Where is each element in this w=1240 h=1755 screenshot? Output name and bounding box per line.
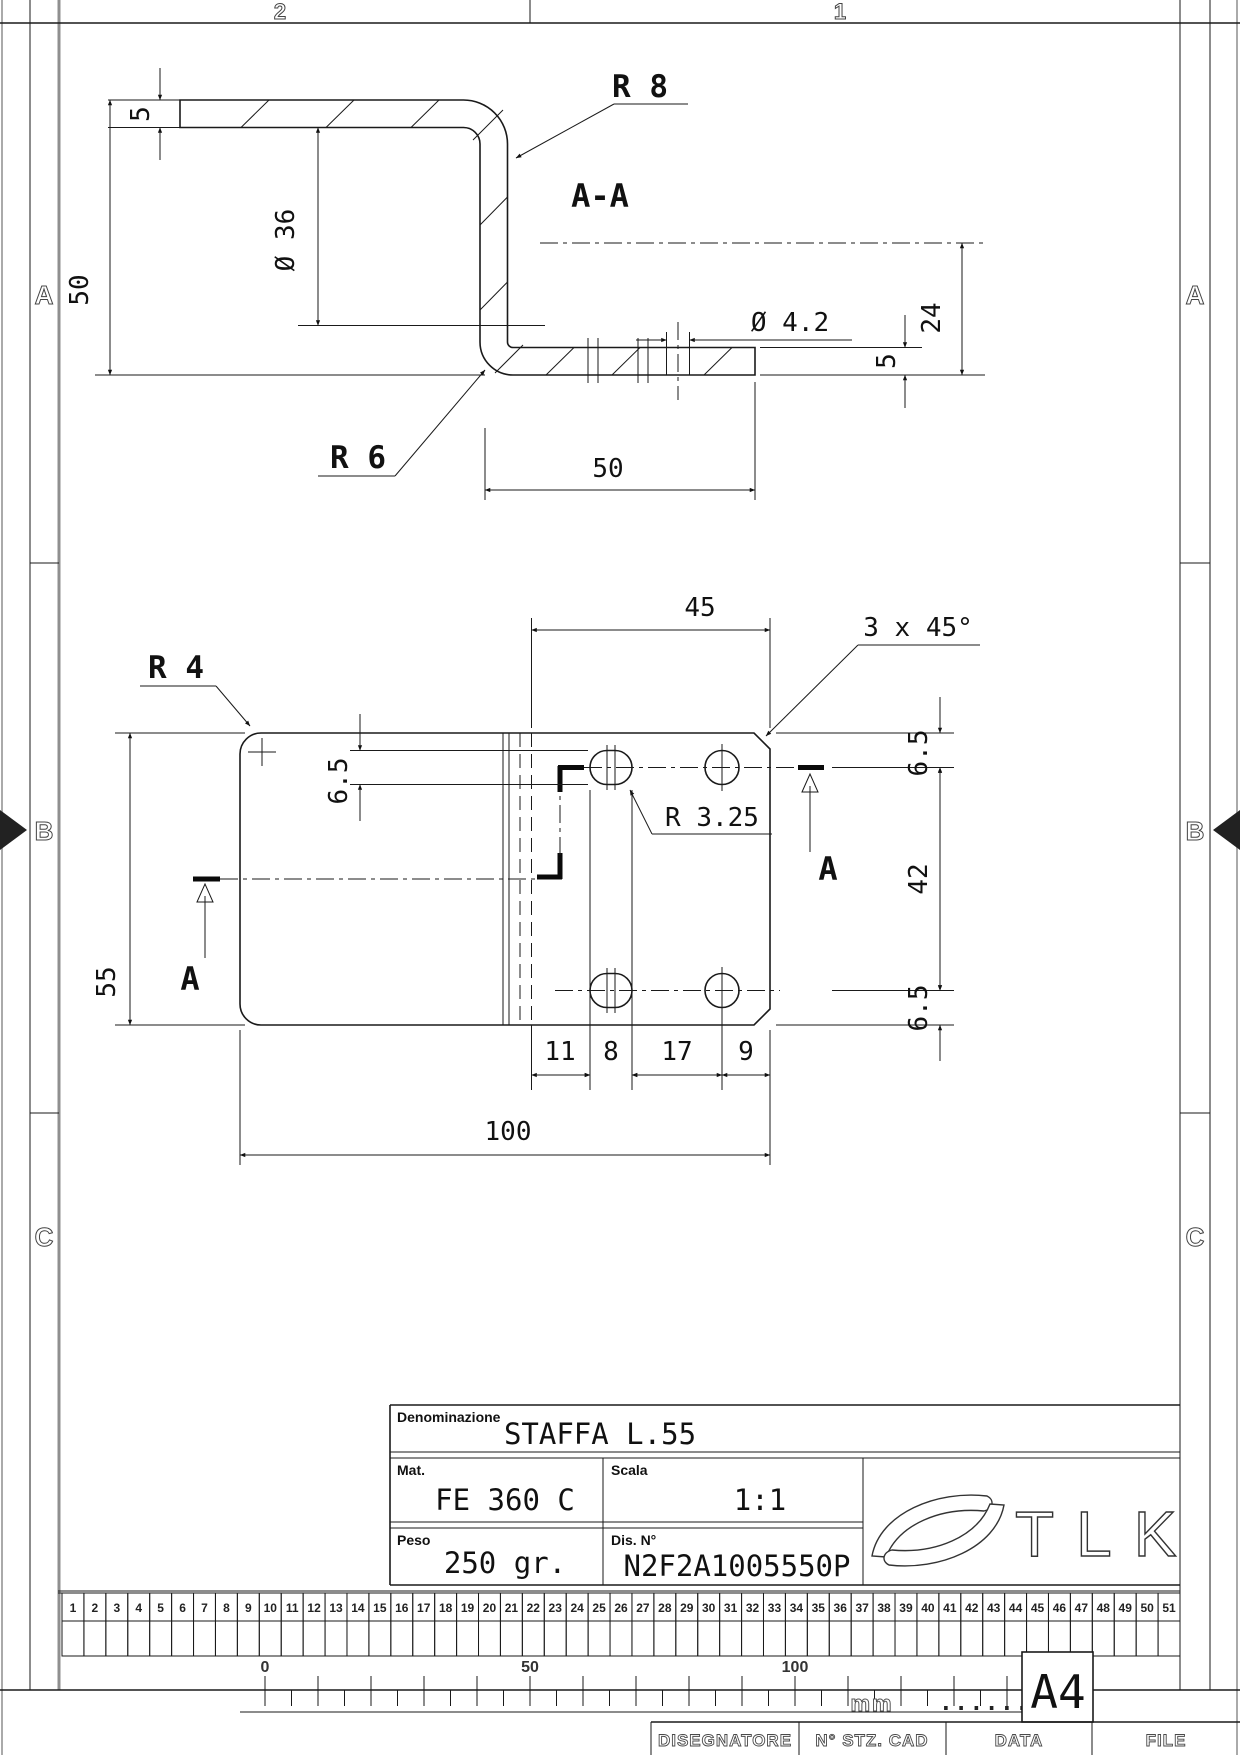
svg-text:6.5: 6.5 — [324, 758, 354, 805]
corner-center-mark — [248, 738, 276, 766]
ruler-cell-number: 28 — [658, 1601, 672, 1615]
ruler-cell — [435, 1621, 457, 1656]
svg-text:50: 50 — [592, 454, 623, 484]
zone-number-1: 1 — [834, 0, 846, 24]
section-hole — [667, 322, 690, 400]
ruler-cell — [654, 1621, 676, 1656]
ruler-cell-number: 47 — [1075, 1601, 1089, 1615]
ruler-cell — [1005, 1621, 1027, 1656]
format-label: A4 — [1030, 1665, 1085, 1719]
ruler-cell — [1027, 1621, 1049, 1656]
svg-text:5: 5 — [872, 353, 902, 369]
ruler-cell — [194, 1621, 216, 1656]
ruler-cell-number: 18 — [439, 1601, 453, 1615]
ruler-cell — [215, 1621, 237, 1656]
ruler-cell-number: 17 — [417, 1601, 431, 1615]
svg-text:R 3.25: R 3.25 — [665, 803, 759, 833]
section-hatch — [241, 100, 732, 375]
section-profile — [180, 100, 755, 375]
tlk-logo: TLK — [872, 1495, 1198, 1570]
ruler-cell — [500, 1621, 522, 1656]
ruler-cell — [632, 1621, 654, 1656]
svg-text:24: 24 — [917, 302, 947, 333]
svg-text:8: 8 — [603, 1037, 619, 1067]
svg-text:17: 17 — [661, 1037, 692, 1067]
dim-r8: R 8 — [516, 69, 688, 158]
ruler-cell-number: 51 — [1162, 1601, 1176, 1615]
ruler-cell — [479, 1621, 501, 1656]
ruler-cell — [785, 1621, 807, 1656]
ruler-cell-number: 16 — [395, 1601, 409, 1615]
scale-ruler-ticks — [265, 1676, 1007, 1706]
dim-slot-height: 6.5 — [324, 714, 588, 821]
ruler-cell-number: 8 — [223, 1601, 230, 1615]
ruler-cell-number: 6 — [179, 1601, 186, 1615]
ruler-cell — [106, 1621, 128, 1656]
ruler-cell-number: 1 — [70, 1601, 77, 1615]
ruler-cell — [259, 1621, 281, 1656]
ruler-cell — [588, 1621, 610, 1656]
ruler-cell-number: 13 — [329, 1601, 343, 1615]
cut-label-left: A — [180, 960, 199, 998]
title-block: Denominazione STAFFA L.55 Mat. FE 360 C … — [58, 1405, 1198, 1591]
ruler-cell-number: 42 — [965, 1601, 979, 1615]
ruler-cell-number: 43 — [987, 1601, 1001, 1615]
ruler-cell-number: 31 — [724, 1601, 738, 1615]
dis-label: Dis. N° — [611, 1532, 656, 1548]
ruler-cell — [1114, 1621, 1136, 1656]
index-ruler: 1234567891011121314151617181920212223242… — [58, 1593, 1180, 1656]
fold-mark-right — [1213, 810, 1240, 850]
ruler-cell — [961, 1621, 983, 1656]
ruler-cell-number: 45 — [1031, 1601, 1045, 1615]
svg-text:R 8: R 8 — [612, 69, 668, 105]
dim-45: 45 — [532, 593, 771, 728]
ruler-cell-number: 36 — [834, 1601, 848, 1615]
svg-text:R 4: R 4 — [148, 650, 204, 686]
ruler-cell-number: 37 — [855, 1601, 869, 1615]
ruler-cell — [983, 1621, 1005, 1656]
ruler-cell — [457, 1621, 479, 1656]
ruler-cell-number: 14 — [351, 1601, 365, 1615]
ruler-cell — [62, 1621, 84, 1656]
footer-n-stz-cad: N° STZ. CAD — [815, 1731, 928, 1750]
dim-w50: 50 — [485, 382, 755, 500]
zone-letter-a-right: A — [1186, 280, 1205, 310]
denominazione-label: Denominazione — [397, 1409, 501, 1425]
ruler-cell — [917, 1621, 939, 1656]
ruler-cell — [150, 1621, 172, 1656]
ruler-cell — [237, 1621, 259, 1656]
dim-offset-top: 6.5 — [776, 697, 954, 804]
dim-r6: R 6 — [318, 370, 485, 476]
footer-strip: DISEGNATORE N° STZ. CAD DATA FILE — [651, 1722, 1240, 1755]
ruler-cell-number: 33 — [768, 1601, 782, 1615]
ruler-cell-number: 3 — [113, 1601, 120, 1615]
ruler-cell — [522, 1621, 544, 1656]
ruler-cell-number: 49 — [1119, 1601, 1133, 1615]
zone-letter-c-right: C — [1186, 1222, 1205, 1252]
ruler-cell-number: 26 — [614, 1601, 628, 1615]
svg-text:50: 50 — [65, 274, 95, 305]
scale-label-100: 100 — [782, 1659, 809, 1676]
dis-value: N2F2A1005550P — [624, 1549, 851, 1583]
svg-text:6.5: 6.5 — [904, 985, 934, 1032]
ruler-cell — [1158, 1621, 1180, 1656]
tlk-logo-text: TLK — [1015, 1498, 1198, 1570]
peso-label: Peso — [397, 1532, 430, 1548]
ruler-cell-number: 30 — [702, 1601, 716, 1615]
ruler-cell — [1048, 1621, 1070, 1656]
dim-thickness-top: 5 — [108, 68, 182, 160]
ruler-cell-number: 22 — [527, 1601, 541, 1615]
ruler-cell-number: 21 — [505, 1601, 519, 1615]
denominazione-value: STAFFA L.55 — [504, 1417, 696, 1451]
ruler-cell — [1070, 1621, 1092, 1656]
ruler-cell — [369, 1621, 391, 1656]
ruler-cell-number: 5 — [157, 1601, 164, 1615]
ruler-cell-number: 11 — [286, 1601, 299, 1615]
ruler-cell — [895, 1621, 917, 1656]
svg-text:R 6: R 6 — [330, 440, 386, 476]
dim-42: 42 — [904, 768, 940, 991]
section-slot-projection — [588, 338, 648, 383]
ruler-cell — [698, 1621, 720, 1656]
sheet-frame: 2 1 A B C A B C — [0, 0, 1240, 1755]
ruler-cell-number: 34 — [790, 1601, 804, 1615]
ruler-cell — [566, 1621, 588, 1656]
dim-r4: R 4 — [140, 650, 250, 726]
svg-text:100: 100 — [485, 1117, 532, 1147]
ruler-cell — [325, 1621, 347, 1656]
ruler-cell — [303, 1621, 325, 1656]
dim-offset-bottom: 6.5 — [776, 955, 954, 1061]
mat-value: FE 360 C — [435, 1483, 575, 1517]
ruler-cell-number: 48 — [1097, 1601, 1111, 1615]
ruler-cell — [873, 1621, 895, 1656]
ruler-cell — [720, 1621, 742, 1656]
zone-letter-c-left: C — [35, 1222, 54, 1252]
drawing-sheet: 2 1 A B C A B C — [0, 0, 1240, 1755]
ruler-cell-number: 15 — [373, 1601, 387, 1615]
peso-value: 250 gr. — [444, 1546, 566, 1580]
svg-text:5: 5 — [126, 106, 156, 122]
ruler-cell-number: 32 — [746, 1601, 760, 1615]
ruler-cell-number: 41 — [943, 1601, 957, 1615]
ruler-cell-number: 38 — [877, 1601, 891, 1615]
scale-label-0: 0 — [261, 1659, 270, 1676]
dim-d36: Ø 36 — [271, 128, 545, 326]
ruler-cell-number: 24 — [570, 1601, 584, 1615]
ruler-cell-number: 46 — [1053, 1601, 1067, 1615]
mat-label: Mat. — [397, 1462, 425, 1478]
ruler-cell — [84, 1621, 106, 1656]
ruler-cell-number: 35 — [812, 1601, 826, 1615]
footer-disegnatore: DISEGNATORE — [658, 1731, 792, 1750]
ruler-cell — [676, 1621, 698, 1656]
ruler-cell-number: 12 — [307, 1601, 321, 1615]
ruler-cell-number: 25 — [592, 1601, 606, 1615]
cut-label-right: A — [818, 850, 837, 888]
unit-label: mm — [850, 1691, 893, 1716]
ruler-cell — [413, 1621, 435, 1656]
ruler-cell-number: 44 — [1009, 1601, 1023, 1615]
ruler-cell — [1136, 1621, 1158, 1656]
ruler-cell — [829, 1621, 851, 1656]
zone-number-2: 2 — [274, 0, 286, 24]
dim-r325: R 3.25 — [630, 790, 772, 834]
ruler-cell — [128, 1621, 150, 1656]
ruler-cell-number: 10 — [264, 1601, 278, 1615]
ruler-cell-number: 9 — [245, 1601, 252, 1615]
ruler-cell — [1092, 1621, 1114, 1656]
ruler-cell — [347, 1621, 369, 1656]
svg-text:Ø 36: Ø 36 — [271, 209, 301, 272]
ruler-cell-number: 23 — [549, 1601, 563, 1615]
svg-text:11: 11 — [544, 1037, 575, 1067]
ruler-cell — [172, 1621, 194, 1656]
a4-box: A4 — [1022, 1652, 1093, 1722]
footer-file: FILE — [1146, 1731, 1187, 1750]
scala-value: 1:1 — [734, 1483, 786, 1517]
ruler-cell — [851, 1621, 873, 1656]
svg-text:Ø 4.2: Ø 4.2 — [751, 308, 829, 338]
dim-d42: Ø 4.2 — [636, 308, 852, 348]
section-label: A-A — [571, 177, 629, 215]
dim-chamfer: 3 x 45° — [766, 613, 980, 736]
ruler-cell-number: 2 — [92, 1601, 99, 1615]
zone-letter-a-left: A — [35, 280, 54, 310]
svg-text:9: 9 — [738, 1037, 754, 1067]
scala-label: Scala — [611, 1462, 648, 1478]
ruler-cell-number: 50 — [1140, 1601, 1154, 1615]
ruler-cell-number: 40 — [921, 1601, 935, 1615]
section-view: A-A R 8 5 50 Ø 36 — [65, 68, 985, 500]
zone-letter-b-right: B — [1186, 816, 1205, 846]
svg-text:6.5: 6.5 — [904, 730, 934, 777]
svg-text:55: 55 — [92, 966, 122, 997]
footer-data: DATA — [995, 1731, 1044, 1750]
svg-text:45: 45 — [684, 593, 715, 623]
plan-view: A A 45 3 x 45° R 4 — [92, 593, 980, 1165]
ruler-cell — [610, 1621, 632, 1656]
ruler-cell-number: 27 — [636, 1601, 650, 1615]
ruler-cell — [939, 1621, 961, 1656]
scale-label-50: 50 — [521, 1659, 539, 1676]
ruler-cell — [807, 1621, 829, 1656]
ruler-cell-number: 4 — [135, 1601, 142, 1615]
ruler-cell-number: 20 — [483, 1601, 497, 1615]
placeholder-dots: ...... — [939, 1691, 1030, 1716]
zone-letter-b-left: B — [35, 816, 54, 846]
cad-drawing: 2 1 A B C A B C — [0, 0, 1240, 1755]
ruler-cell-number: 29 — [680, 1601, 694, 1615]
ruler-cell — [281, 1621, 303, 1656]
svg-text:3 x 45°: 3 x 45° — [863, 613, 973, 643]
ruler-cell-number: 7 — [201, 1601, 208, 1615]
ruler-cell-number: 19 — [461, 1601, 475, 1615]
ruler-cell — [544, 1621, 566, 1656]
fold-mark-left — [0, 810, 27, 850]
ruler-cell — [763, 1621, 785, 1656]
ruler-cell — [391, 1621, 413, 1656]
svg-text:42: 42 — [904, 863, 934, 894]
ruler-cell-number: 39 — [899, 1601, 913, 1615]
dim-bottom-row: 11 8 17 9 — [532, 790, 771, 1165]
ruler-cell — [742, 1621, 764, 1656]
